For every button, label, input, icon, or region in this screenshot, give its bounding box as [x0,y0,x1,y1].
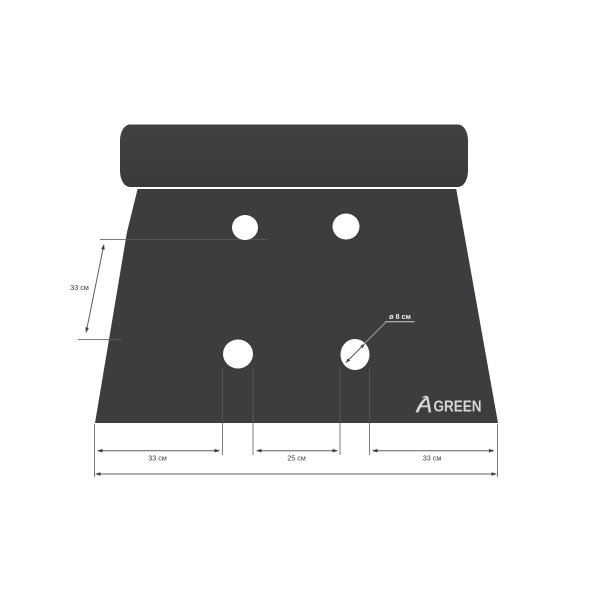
svg-text:33 см: 33 см [70,283,89,292]
svg-text:ø 8 см: ø 8 см [389,312,411,321]
svg-text:33 см: 33 см [423,454,442,463]
svg-text:GREEN: GREEN [434,398,482,415]
svg-text:33 см: 33 см [148,454,167,463]
svg-text:25 см: 25 см [287,454,306,463]
